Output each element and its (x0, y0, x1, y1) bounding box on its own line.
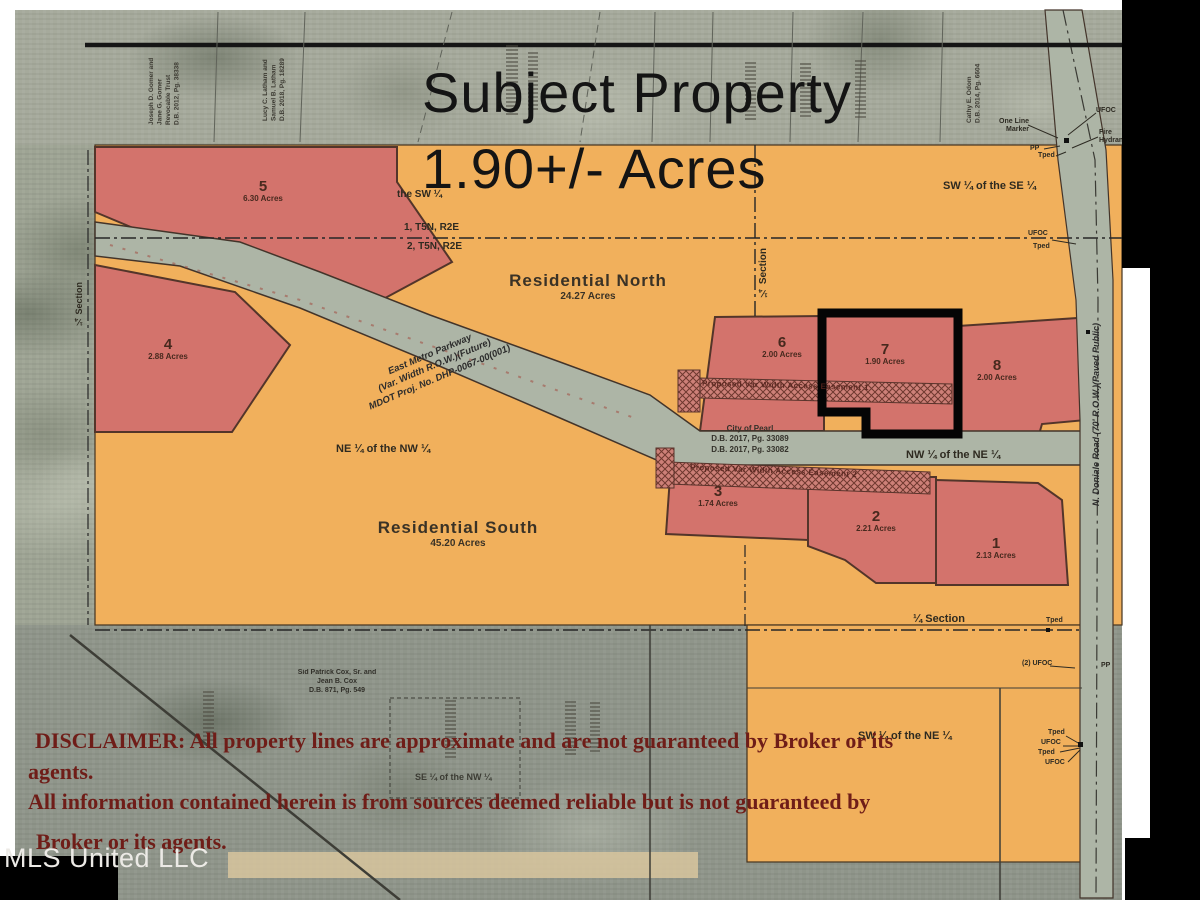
residential-south-name: Residential South (358, 518, 558, 538)
parcel-7-label: 71.90 Acres (840, 343, 930, 366)
quarter-section-label-left: ¼ Section (74, 282, 84, 327)
illegible-deed-text (855, 60, 866, 118)
ufoc-marker: UFOC (1045, 759, 1065, 767)
tped-marker: Tped (1048, 729, 1065, 737)
one-line-marker: One Line Marker (985, 118, 1029, 134)
easement-1-stub-hatch (678, 370, 700, 412)
side-road-label: N. Doniale Road (70' R.O.W.)(Paved Publi… (1091, 250, 1103, 580)
ufoc-marker: UFOC (1041, 739, 1061, 747)
owner-label-latham: Lucy C. Latham and Samuel B. Latham D.B.… (262, 36, 287, 121)
pp-marker: PP (1101, 662, 1110, 670)
quarter-label-nw-of-ne: NW ¼ of the NE ¼ (906, 449, 1000, 461)
parcel-8-label: 82.00 Acres (952, 359, 1042, 382)
parcel-6-shape (700, 316, 824, 431)
township-label-below: 2, T5N, R2E (407, 241, 462, 252)
tped-marker: Tped (1033, 243, 1050, 251)
residential-north-name: Residential North (478, 271, 698, 291)
residential-north-acres: 24.27 Acres (478, 291, 698, 302)
tped-marker: Tped (1038, 749, 1055, 757)
ufoc-marker: UFOC (1028, 230, 1048, 238)
city-of-pearl-annotation: City of Pearl D.B. 2017, Pg. 33089 D.B. … (695, 424, 805, 455)
quarter-label-se-of-nw: SE ¼ of the NW ¼ (415, 772, 492, 782)
tped-marker: Tped (1046, 617, 1063, 625)
easement-2-stub-hatch (656, 448, 674, 488)
plat-map-drawing (0, 0, 1200, 900)
disclaimer-line-1: DISCLAIMER: All property lines are appro… (35, 728, 893, 754)
owner-label-gomer: Joseph D. Gomer and Jane G. Gomer Revoca… (148, 40, 182, 125)
owner-label-odom: Cathy E. Odom D.B. 2014, Pg. 6604 (966, 53, 983, 123)
parcel-3-label: 31.74 Acres (673, 485, 763, 508)
quarter-label-sw-of-se: SW ¼ of the SE ¼ (943, 180, 1036, 192)
ufoc-marker: UFOC (1096, 107, 1116, 115)
quarter-section-label-south: ¼ Section (913, 613, 965, 625)
parcel-5-label: 56.30 Acres (218, 180, 308, 203)
quarter-label-ne-of-nw: NE ¼ of the NW ¼ (336, 443, 430, 455)
township-label-above: 1, T5N, R2E (404, 222, 459, 233)
owner-label-cox: Sid Patrick Cox, Sr. and Jean B. Cox D.B… (282, 668, 392, 695)
mls-watermark: MLS United LLC (4, 843, 209, 874)
tped-marker: Tped (1038, 152, 1055, 160)
parcel-2-label: 22.21 Acres (831, 510, 921, 533)
tan-strip-bottom (228, 852, 698, 878)
scan-edge-top-right (1122, 0, 1200, 268)
residential-north-label: Residential North 24.27 Acres (478, 271, 698, 302)
parcel-1-shape (936, 480, 1068, 585)
residential-south-acres: 45.20 Acres (358, 538, 558, 549)
ufoc2-marker: (2) UFOC (1022, 660, 1052, 668)
quarter-section-label-mid: ¼ Section (758, 248, 769, 298)
parcel-6-label: 62.00 Acres (737, 336, 827, 359)
parcel-1-label: 12.13 Acres (951, 537, 1041, 560)
disclaimer-line-2: agents. (28, 759, 93, 785)
plat-map-scan: Subject Property 1.90+/- Acres Residenti… (0, 0, 1200, 900)
residential-south-label: Residential South 45.20 Acres (358, 518, 558, 549)
parcel-4-label: 42.88 Acres (123, 338, 213, 361)
page-title: Subject Property (422, 60, 852, 125)
disclaimer-line-3: All information contained herein is from… (28, 789, 870, 815)
subject-acreage-title: 1.90+/- Acres (422, 136, 767, 201)
scan-edge-bottom-right (1125, 838, 1200, 900)
